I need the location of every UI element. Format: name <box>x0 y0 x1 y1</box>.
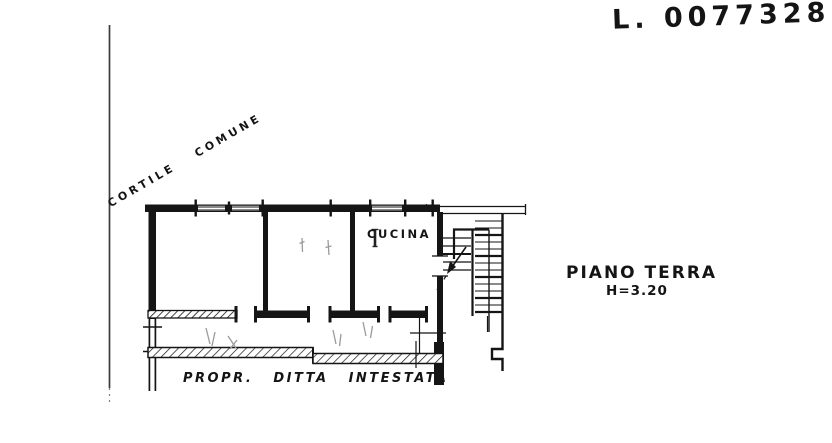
floor-height-label: H=3.20 <box>566 283 708 299</box>
ownership-label: PROPR. DITTA INTESTATA <box>183 371 449 386</box>
floor-info: PIANO TERRA H=3.20 <box>566 263 708 299</box>
floor-plan-document: L. 0077328 CORTILE COMUNE CUCINA PIANO T… <box>0 0 832 443</box>
kitchen-room-label: CUCINA <box>367 227 431 241</box>
staircase <box>443 213 503 371</box>
boundary-wall <box>148 341 443 368</box>
pencil-marks <box>206 238 373 349</box>
floor-label: PIANO TERRA <box>566 263 708 283</box>
